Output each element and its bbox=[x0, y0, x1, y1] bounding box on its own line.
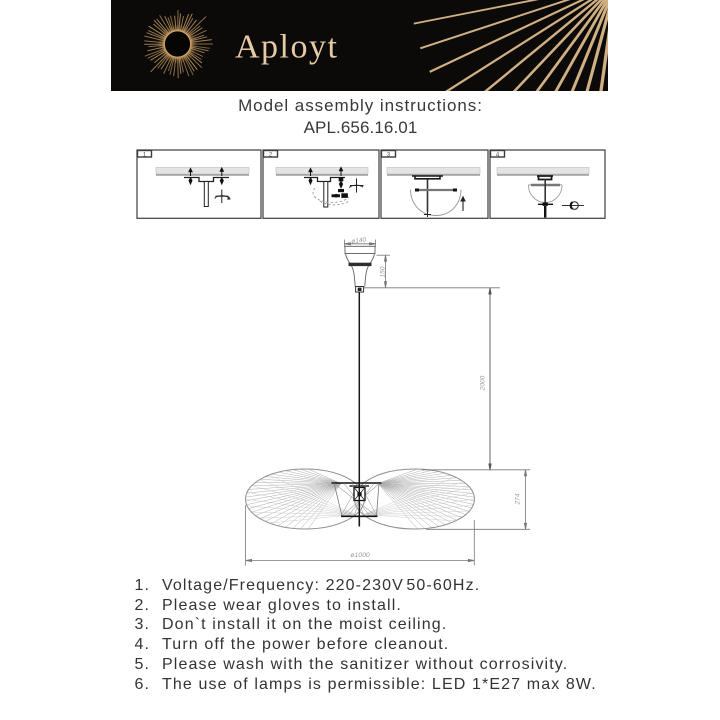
svg-text:274: 274 bbox=[515, 493, 522, 505]
svg-text:150: 150 bbox=[380, 266, 387, 277]
svg-text:2000: 2000 bbox=[480, 375, 487, 391]
svg-text:ø1000: ø1000 bbox=[350, 552, 369, 559]
